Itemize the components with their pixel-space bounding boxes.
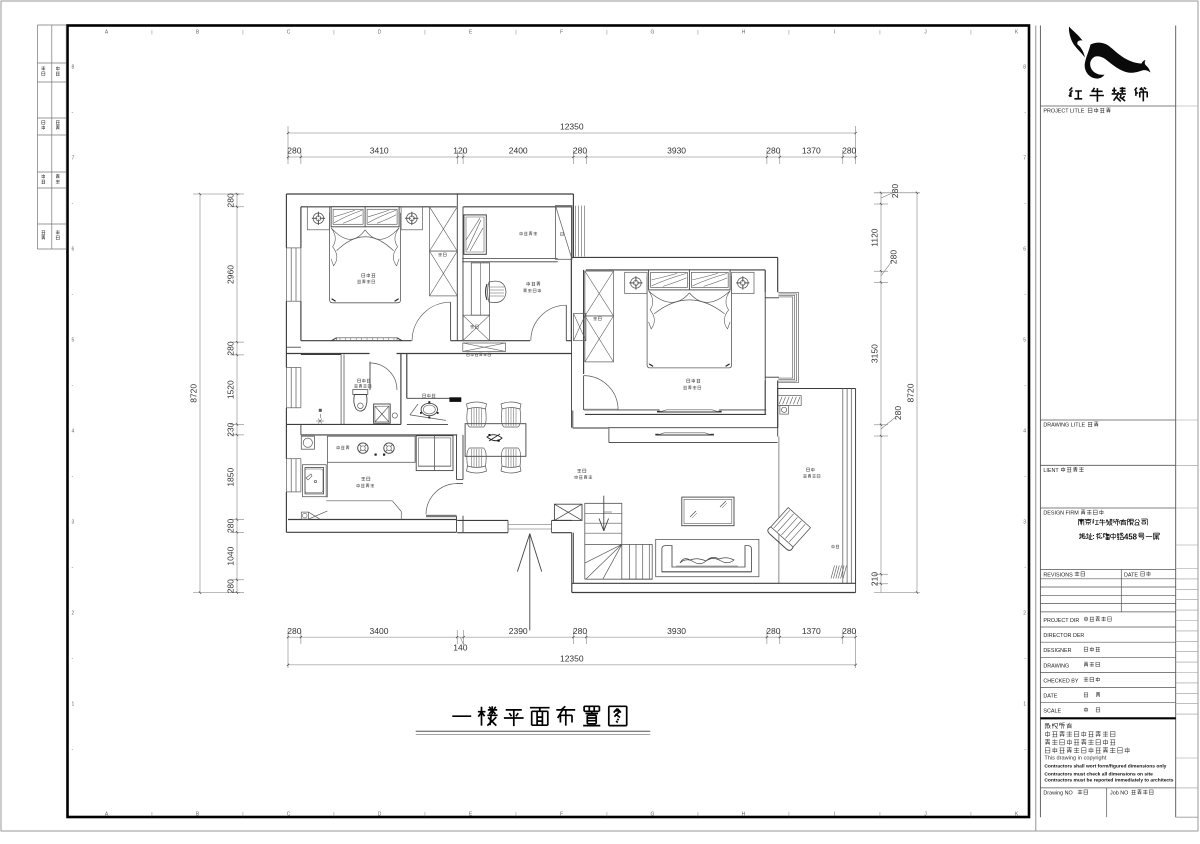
svg-text:1520: 1520	[226, 380, 236, 399]
svg-text:G: G	[651, 812, 655, 818]
svg-text:|: |	[606, 30, 607, 35]
svg-text:7: 7	[72, 156, 75, 162]
svg-text:2400: 2400	[509, 146, 528, 156]
svg-text:|: |	[970, 812, 971, 817]
svg-text:280: 280	[226, 519, 236, 533]
svg-text:DATE: DATE	[1124, 572, 1138, 578]
svg-text:1120: 1120	[870, 228, 880, 247]
svg-text:|: |	[788, 30, 789, 35]
svg-text:LIENT: LIENT	[1043, 468, 1059, 474]
svg-text:3: 3	[72, 520, 75, 526]
svg-text:|: |	[879, 30, 880, 35]
svg-text:|: |	[151, 812, 152, 817]
svg-text:280: 280	[573, 626, 587, 636]
svg-text:1370: 1370	[802, 146, 821, 156]
svg-text:458: 458	[1124, 533, 1138, 542]
svg-text:DRAWING LITLE: DRAWING LITLE	[1043, 423, 1085, 429]
svg-text:6: 6	[72, 247, 75, 253]
svg-text:8: 8	[1023, 65, 1026, 71]
svg-text:F: F	[560, 812, 563, 818]
svg-text:PROJECT LITLE: PROJECT LITLE	[1043, 109, 1084, 115]
svg-text:280: 280	[889, 250, 899, 264]
svg-text:280: 280	[766, 146, 780, 156]
svg-text:H: H	[742, 812, 746, 818]
svg-text:120: 120	[453, 146, 467, 156]
svg-text:2390: 2390	[509, 626, 528, 636]
svg-text:1370: 1370	[802, 626, 821, 636]
svg-text:230: 230	[226, 422, 236, 436]
svg-text:1040: 1040	[226, 546, 236, 565]
svg-text:6: 6	[1023, 247, 1026, 253]
svg-text:1: 1	[72, 702, 75, 708]
svg-text:4: 4	[72, 429, 75, 435]
svg-text:D: D	[378, 30, 382, 36]
svg-text:C: C	[287, 30, 291, 36]
svg-text:|: |	[515, 812, 516, 817]
svg-text:G: G	[651, 30, 655, 36]
svg-text:Job NO: Job NO	[1110, 791, 1128, 797]
svg-text:DIRECTOR DER: DIRECTOR DER	[1043, 633, 1084, 639]
svg-text:8720: 8720	[189, 384, 199, 403]
svg-text:I: I	[834, 30, 835, 36]
svg-text:3: 3	[1023, 520, 1026, 526]
svg-text:1850: 1850	[226, 467, 236, 486]
svg-text:280: 280	[287, 626, 301, 636]
svg-text:|: |	[515, 30, 516, 35]
svg-text:8720: 8720	[906, 383, 916, 402]
svg-text::: :	[1092, 534, 1094, 541]
svg-text:|: |	[424, 812, 425, 817]
svg-text:7: 7	[1023, 156, 1026, 162]
svg-text:SCALE: SCALE	[1043, 709, 1061, 715]
svg-text:5: 5	[1023, 338, 1026, 344]
svg-text:Contractors shall wort form/fi: Contractors shall wort form/figured dime…	[1044, 764, 1166, 770]
svg-text:210: 210	[870, 572, 880, 586]
svg-text:|: |	[242, 812, 243, 817]
svg-text:3930: 3930	[667, 146, 686, 156]
svg-text:|: |	[424, 30, 425, 35]
svg-text:H: H	[742, 30, 746, 36]
svg-text:|: |	[879, 812, 880, 817]
svg-text:|: |	[606, 812, 607, 817]
svg-text:|: |	[333, 812, 334, 817]
svg-text:2: 2	[1023, 611, 1026, 617]
svg-text:12350: 12350	[560, 122, 584, 132]
svg-text:Contractors must check all dim: Contractors must check all dimensions on…	[1044, 771, 1153, 777]
svg-text:DATE: DATE	[1043, 694, 1057, 700]
svg-text:2: 2	[72, 611, 75, 617]
svg-text:3930: 3930	[667, 626, 686, 636]
svg-text:Contractors must be reported i: Contractors must be reported immediately…	[1044, 778, 1173, 784]
svg-text:280: 280	[226, 341, 236, 355]
svg-text:8: 8	[72, 65, 75, 71]
svg-text:4: 4	[1023, 429, 1026, 435]
svg-text:DRAWING: DRAWING	[1043, 663, 1069, 669]
svg-text:280: 280	[766, 626, 780, 636]
svg-text:280: 280	[890, 184, 900, 198]
svg-text:|: |	[970, 30, 971, 35]
svg-text:|: |	[333, 30, 334, 35]
svg-text:|: |	[242, 30, 243, 35]
svg-text:12350: 12350	[560, 654, 584, 664]
svg-text:This drawing in copyright: This drawing in copyright	[1044, 756, 1106, 762]
svg-text:5: 5	[72, 338, 75, 344]
svg-text:280: 280	[842, 146, 856, 156]
svg-text:D: D	[378, 812, 382, 818]
svg-text:DESIGN FIRM: DESIGN FIRM	[1043, 511, 1079, 517]
svg-text:C: C	[287, 812, 291, 818]
svg-text:3150: 3150	[870, 344, 880, 363]
svg-text:280: 280	[842, 626, 856, 636]
svg-text:2960: 2960	[226, 265, 236, 284]
svg-text:I: I	[834, 812, 835, 818]
svg-text:|: |	[788, 812, 789, 817]
svg-text:280: 280	[226, 579, 236, 593]
svg-text:CHECKED BY: CHECKED BY	[1043, 678, 1078, 684]
svg-text:Drawing NO: Drawing NO	[1043, 791, 1072, 797]
svg-text:REVISIONS: REVISIONS	[1043, 572, 1073, 578]
svg-text:F: F	[560, 30, 563, 36]
svg-text:3400: 3400	[370, 626, 389, 636]
svg-text:140: 140	[453, 643, 467, 653]
svg-text:DESIGNER: DESIGNER	[1043, 648, 1071, 654]
svg-text:3410: 3410	[370, 146, 389, 156]
svg-text:|: |	[151, 30, 152, 35]
svg-text:280: 280	[573, 146, 587, 156]
svg-text:280: 280	[226, 193, 236, 207]
svg-text:|: |	[697, 30, 698, 35]
svg-text:1: 1	[1023, 702, 1026, 708]
svg-text:PROJECT DIR: PROJECT DIR	[1043, 618, 1079, 624]
svg-text:280: 280	[287, 146, 301, 156]
svg-text:|: |	[697, 812, 698, 817]
